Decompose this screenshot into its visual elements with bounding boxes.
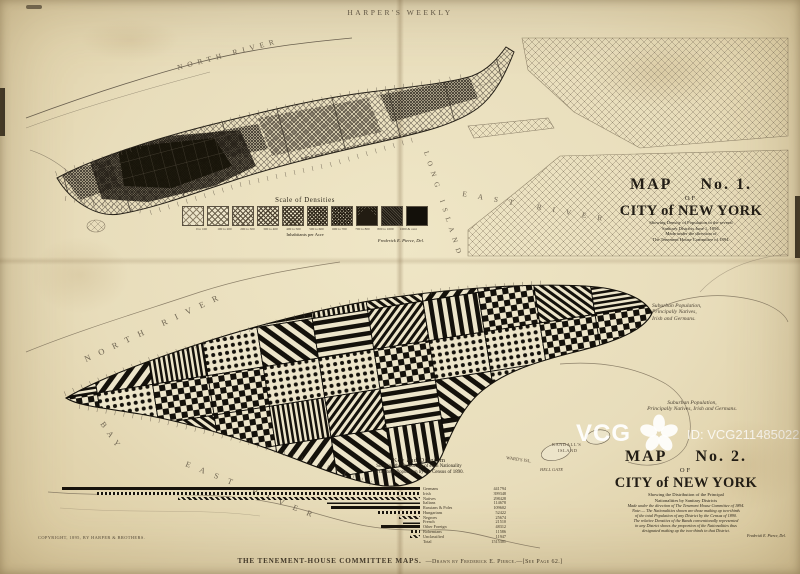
suburban-note-line: Irish and Germans. xyxy=(652,316,701,322)
map2-hell-gate-label: HELL GATE xyxy=(539,467,563,472)
district-cell xyxy=(595,306,657,354)
total-label: Total xyxy=(420,539,478,544)
nationality-bar xyxy=(410,535,420,538)
map2-note-line: designated making up the two-thirds in t… xyxy=(586,528,786,533)
bin-label: 100 to 200 xyxy=(215,227,235,231)
density-swatch xyxy=(282,206,304,226)
legend-swatches xyxy=(182,206,428,226)
bin-label: 600 to 700 xyxy=(330,227,350,231)
map2-randalls-island-label-2: ISLAND xyxy=(558,448,578,453)
district-cell xyxy=(497,402,559,450)
bin-label: 0 to 100 xyxy=(192,227,212,231)
bin-label: 700 to 800 xyxy=(353,227,373,231)
masthead: HARPER'S WEEKLY xyxy=(0,8,800,17)
map1-title-city: CITY of NEW YORK xyxy=(598,203,784,220)
district-cell xyxy=(601,345,663,393)
nationality-bar xyxy=(62,487,420,490)
density-swatch xyxy=(356,206,378,226)
vcg-flower-icon xyxy=(639,414,679,454)
map1-blackwells-island xyxy=(468,118,554,138)
legend-unit-label: Inhabitants per Acre xyxy=(182,232,428,237)
density-swatch xyxy=(182,206,204,226)
nationality-bar xyxy=(411,530,420,533)
map1-title-map: MAP xyxy=(630,176,672,194)
district-cell xyxy=(435,371,497,419)
nationality-bar xyxy=(331,506,420,509)
scanned-map-sheet: HARPER'S WEEKLY xyxy=(0,0,800,574)
total-value: 1515301 xyxy=(478,539,506,544)
legend-bin-labels: 0 to 100 100 to 200 200 to 300 300 to 40… xyxy=(182,227,428,231)
map1-north-river-label: NORTH RIVER xyxy=(176,36,280,72)
density-swatch xyxy=(406,206,428,226)
legend-credit: Frederick E. Pierce, Del. xyxy=(182,238,428,243)
bin-label: 1000 & over xyxy=(399,227,419,231)
nationality-bar xyxy=(399,516,420,519)
watermark-id: ID: VCG211485022655 xyxy=(687,427,800,442)
district-cell xyxy=(540,314,602,362)
bin-label: 400 to 500 xyxy=(284,227,304,231)
district-cell xyxy=(546,354,608,402)
district-cell xyxy=(42,393,104,441)
district-cell xyxy=(159,415,221,463)
key-title-line: Key and Diagram xyxy=(330,457,508,464)
map2-title-block: MAP No. 2. OF CITY of NEW YORK Showing t… xyxy=(586,448,786,538)
density-swatch xyxy=(232,206,254,226)
total-row: Total1515301 xyxy=(62,539,510,544)
map1-nj-shoreline-inner xyxy=(26,72,210,128)
legend-title: Scale of Densities xyxy=(182,197,428,204)
map2-bronx-detail xyxy=(700,254,788,292)
map1-westchester-area xyxy=(522,38,788,148)
bin-label: 200 to 300 xyxy=(238,227,258,231)
map2-suburban-note-1: Suburban Population, Principally Natives… xyxy=(652,303,701,322)
density-swatch xyxy=(331,206,353,226)
bin-label: 500 to 600 xyxy=(307,227,327,231)
district-cell xyxy=(276,437,338,485)
map1-long-island-label: LONG ISLAND xyxy=(422,150,464,260)
bottom-caption: THE TENEMENT-HOUSE COMMITTEE MAPS. —Draw… xyxy=(0,550,800,568)
density-swatch xyxy=(381,206,403,226)
nationality-bar xyxy=(97,492,421,495)
nationality-bar xyxy=(178,497,420,500)
stock-watermark: VCG ID: VCG211485022655 xyxy=(576,414,800,454)
bin-label: 800 to 1000 xyxy=(376,227,396,231)
district-cell xyxy=(491,363,553,411)
district-cell xyxy=(48,433,110,481)
density-swatch xyxy=(257,206,279,226)
map1-title-block: MAP No. 1. OF CITY of NEW YORK Showing D… xyxy=(598,176,784,242)
nationality-bar xyxy=(378,511,421,514)
district-cell xyxy=(657,336,719,384)
nationality-bar xyxy=(403,521,420,524)
caption-credit: —Drawn by Frederick E. Pierce.—[See Page… xyxy=(426,559,563,565)
nationality-bar xyxy=(381,525,420,528)
density-swatch xyxy=(207,206,229,226)
suburban-note-line: Principally Natives, Irish and Germans. xyxy=(592,406,792,412)
map2-suburban-note-2: Suburban Population, Principally Natives… xyxy=(592,400,792,413)
bin-label: 300 to 400 xyxy=(261,227,281,231)
map2-bay-label: BAY xyxy=(98,420,125,453)
map2-wards-island-label: WARD'S ISL. xyxy=(506,455,532,464)
suburban-note-line: Principally Natives, xyxy=(652,309,701,315)
map1-governors-island xyxy=(87,220,105,232)
map1-title-no: No. 1. xyxy=(700,176,752,194)
caption-main: THE TENEMENT-HOUSE COMMITTEE MAPS. xyxy=(237,557,421,565)
district-cell xyxy=(484,323,546,371)
map2-title-city: CITY of NEW YORK xyxy=(586,475,786,492)
map2-credit: Frederick E. Pierce, Del. xyxy=(586,534,786,538)
map2-title-of: OF xyxy=(586,467,786,474)
map1-density-legend: Scale of Densities 0 to 100 100 to 200 2… xyxy=(182,197,428,243)
key-title-line: in the total Population by the Census of… xyxy=(330,470,508,476)
district-cell xyxy=(644,257,706,305)
watermark-brand: VCG xyxy=(576,420,631,448)
map1-subtitle-line: The Tenement House Committee of 1894. xyxy=(598,237,784,243)
nationality-bar-chart: Germans441794Irish399348Natives298428Ita… xyxy=(62,486,510,544)
map1-title-of: OF xyxy=(598,195,784,202)
nationality-bar xyxy=(327,501,420,504)
density-swatch xyxy=(307,206,329,226)
key-diagram-title: Key and Diagram Showing the Proportion o… xyxy=(330,457,508,475)
